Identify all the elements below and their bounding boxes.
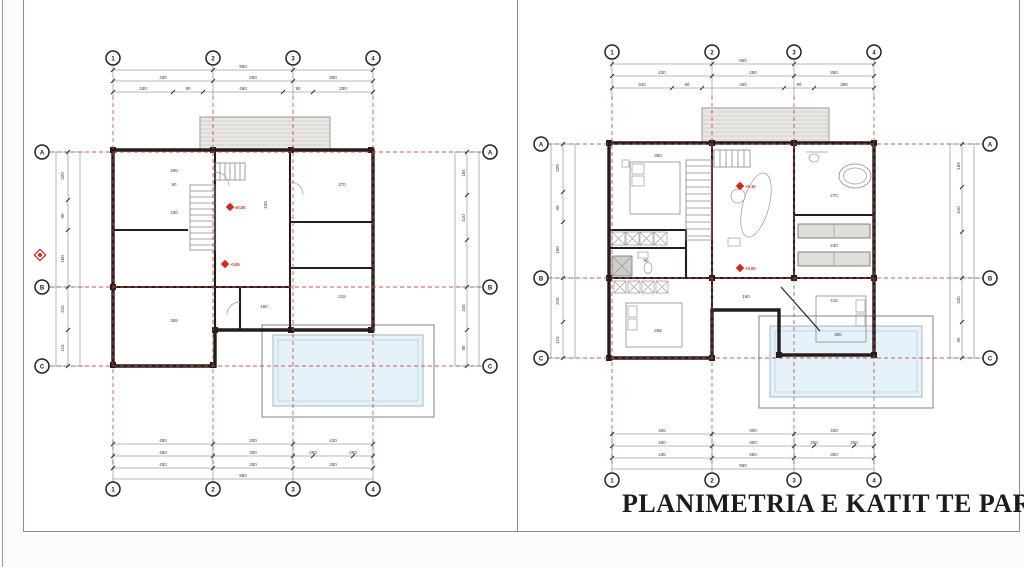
top-dimension-chain: 950 430 250 350 340 90 460 90 280 bbox=[610, 58, 876, 100]
grid-bubble: 1 bbox=[605, 473, 619, 487]
grid-bubble: 4 bbox=[867, 45, 881, 59]
grid-bubble: 4 bbox=[867, 473, 881, 487]
grid-bubble: C bbox=[534, 351, 548, 365]
dim-label: 430 bbox=[658, 452, 666, 457]
dim-label: 160 bbox=[742, 294, 750, 299]
dim-label: 450 bbox=[159, 450, 167, 455]
dim-label: 950 bbox=[739, 58, 747, 63]
grid-bubble-label: C bbox=[988, 357, 993, 363]
terrace bbox=[702, 108, 829, 143]
dim-label: 430 bbox=[830, 428, 838, 433]
grid-bubble-label: A bbox=[488, 151, 493, 157]
dim-label: 260 bbox=[170, 168, 178, 173]
bottom-dimension-chain: 450 300 430 450 300 250 250 430 350 350 … bbox=[111, 438, 375, 482]
grid-bubble-label: A bbox=[539, 143, 544, 149]
dim-label: 950 bbox=[739, 463, 747, 468]
pool bbox=[759, 316, 933, 408]
dim-label: 300 bbox=[249, 438, 257, 443]
dim-label: 430 bbox=[658, 70, 666, 75]
grid-bubble: 1 bbox=[106, 482, 120, 496]
dim-label: 90 bbox=[796, 82, 802, 87]
grid-bubble: 1 bbox=[605, 45, 619, 59]
grid-bubble: 2 bbox=[206, 51, 220, 65]
grid-bubble: 4 bbox=[366, 51, 380, 65]
grid-bubble: 2 bbox=[206, 482, 220, 496]
dim-label: 90 bbox=[684, 82, 690, 87]
dim-label: 350 bbox=[329, 462, 337, 467]
left-dimension-chain: 320 90 160 315 115 bbox=[49, 150, 84, 368]
dim-label: 90 bbox=[171, 182, 177, 187]
dim-label: 950 bbox=[239, 64, 247, 69]
grid-bubble: A bbox=[35, 145, 49, 159]
grid-bubble-label: B bbox=[988, 277, 993, 283]
dim-label: 115 bbox=[555, 336, 560, 344]
dim-label: 250 bbox=[749, 70, 757, 75]
dim-label: 250 bbox=[850, 440, 858, 445]
grid-bubble-label: A bbox=[40, 151, 45, 157]
dim-label: 420 bbox=[263, 201, 268, 209]
dim-label: 90 bbox=[295, 86, 301, 91]
dim-label: 340 bbox=[139, 86, 147, 91]
top-dimension-chain: 950 430 250 350 340 90 460 90 280 bbox=[111, 64, 375, 96]
dim-label: 280 bbox=[840, 82, 848, 87]
dim-label: 90 bbox=[643, 258, 649, 263]
ground-floor-plan-drawing: 950 430 250 350 340 90 460 90 280 450 30… bbox=[24, 0, 519, 532]
section-marker-icon bbox=[34, 249, 45, 260]
dim-label: 315 bbox=[555, 297, 560, 305]
dim-label: 165 bbox=[461, 169, 466, 177]
dim-label: 250 bbox=[309, 450, 317, 455]
dim-label: 90 bbox=[555, 205, 560, 211]
grid-bubble: A bbox=[483, 145, 497, 159]
grid-bubble: 2 bbox=[705, 473, 719, 487]
dim-label: 270 bbox=[338, 182, 346, 187]
dim-label: 450 bbox=[658, 428, 666, 433]
grid-bubble-label: A bbox=[988, 143, 993, 149]
dim-label: 115 bbox=[60, 344, 65, 352]
dim-label: 300 bbox=[834, 332, 842, 337]
dim-label: 270 bbox=[830, 193, 838, 198]
dim-label: 160 bbox=[555, 246, 560, 254]
terrace bbox=[200, 117, 330, 150]
dim-label: 450 bbox=[658, 440, 666, 445]
right-dimension-chain: 165 410 345 90 bbox=[455, 150, 483, 368]
dim-label: 250 bbox=[249, 75, 257, 80]
grid-bubble: B bbox=[983, 271, 997, 285]
dim-label: 90 bbox=[956, 337, 961, 343]
dim-label: 265 bbox=[654, 328, 662, 333]
dim-label: 430 bbox=[159, 75, 167, 80]
dim-label: 350 bbox=[830, 452, 838, 457]
dim-label: 230 bbox=[170, 210, 178, 215]
bottom-dimension-chain: 450 300 430 450 300 250 250 430 350 350 … bbox=[610, 428, 876, 472]
level-marker-icon: +3.00 bbox=[736, 264, 757, 272]
dim-label: 430 bbox=[329, 438, 337, 443]
right-dimension-chain: 165 410 345 90 bbox=[950, 142, 983, 360]
dim-label: 460 bbox=[239, 86, 247, 91]
dim-label: 320 bbox=[60, 172, 65, 180]
plan-caption: PLANIMETRIA E KATIT TE PARE bbox=[622, 489, 1018, 519]
first-floor-plan-drawing: 950 430 250 350 340 90 460 90 280 450 30… bbox=[518, 0, 1021, 532]
dim-label: 160 bbox=[60, 255, 65, 263]
grid-bubble: A bbox=[983, 137, 997, 151]
dim-label: 350 bbox=[249, 462, 257, 467]
grid-bubble-label: C bbox=[488, 365, 493, 371]
grid-bubble: C bbox=[483, 359, 497, 373]
dim-label: 300 bbox=[249, 450, 257, 455]
dim-label: 340 bbox=[638, 82, 646, 87]
dim-label: 350 bbox=[749, 452, 757, 457]
grid-bubble-label: B bbox=[539, 277, 544, 283]
red-grid-lines bbox=[548, 96, 982, 466]
level-marker-icon: -0.05 bbox=[221, 260, 240, 268]
sheet-outer-border bbox=[2, 0, 3, 567]
dim-label: 250 bbox=[810, 440, 818, 445]
grid-bubble: C bbox=[35, 359, 49, 373]
drawing-sheet: 950 430 250 350 340 90 460 90 280 450 30… bbox=[0, 0, 1024, 567]
level-marker-icon: ±0.00 bbox=[226, 203, 246, 211]
grid-bubble-label: C bbox=[40, 365, 45, 371]
dim-label: 280 bbox=[339, 86, 347, 91]
grid-bubble: A bbox=[534, 137, 548, 151]
grid-bubble: C bbox=[983, 351, 997, 365]
dim-label: 160 bbox=[260, 304, 268, 309]
dim-label: 350 bbox=[830, 70, 838, 75]
grid-bubble: 3 bbox=[286, 482, 300, 496]
grid-bubble: 1 bbox=[106, 51, 120, 65]
dim-label: 365 bbox=[170, 318, 178, 323]
dim-label: 415 bbox=[830, 298, 838, 303]
dim-label: 345 bbox=[956, 296, 961, 304]
dim-label: 315 bbox=[338, 294, 346, 299]
dim-label: 950 bbox=[239, 473, 247, 478]
grid-bubble-label: B bbox=[40, 286, 45, 292]
dim-label: 320 bbox=[555, 164, 560, 172]
level-label: +3.00 bbox=[745, 266, 756, 271]
dim-label: 350 bbox=[654, 153, 662, 158]
grid-bubble: B bbox=[35, 280, 49, 294]
ground-floor-panel: 950 430 250 350 340 90 460 90 280 450 30… bbox=[23, 0, 518, 532]
level-label: ±0.00 bbox=[235, 205, 246, 210]
dim-label: 90 bbox=[461, 345, 466, 351]
dim-label: 250 bbox=[349, 450, 357, 455]
left-dimension-chain: 320 90 160 315 115 bbox=[548, 142, 580, 360]
grid-bubble: B bbox=[534, 271, 548, 285]
first-floor-panel: 950 430 250 350 340 90 460 90 280 450 30… bbox=[517, 0, 1020, 532]
dim-label: 350 bbox=[329, 75, 337, 80]
level-marker-icon: +3.10 bbox=[736, 182, 757, 190]
level-label: -0.05 bbox=[230, 262, 240, 267]
dim-label: 300 bbox=[749, 440, 757, 445]
dim-label: 90 bbox=[185, 86, 191, 91]
dim-label: 450 bbox=[159, 438, 167, 443]
dim-label: 165 bbox=[956, 162, 961, 170]
dim-label: 410 bbox=[956, 206, 961, 214]
dim-label: 345 bbox=[461, 304, 466, 312]
pool bbox=[262, 325, 434, 417]
grid-bubble-label: C bbox=[539, 357, 544, 363]
grid-bubble: 4 bbox=[366, 482, 380, 496]
grid-bubble: 2 bbox=[705, 45, 719, 59]
dim-label: 300 bbox=[749, 428, 757, 433]
level-label: +3.10 bbox=[745, 184, 756, 189]
grid-bubble: 3 bbox=[286, 51, 300, 65]
dim-label: 410 bbox=[461, 214, 466, 222]
grid-bubble: 3 bbox=[787, 473, 801, 487]
dim-label: 90 bbox=[60, 213, 65, 219]
grid-bubble: 3 bbox=[787, 45, 801, 59]
dim-label: 460 bbox=[739, 82, 747, 87]
dim-label: 230 bbox=[830, 243, 838, 248]
grid-bubble-label: B bbox=[488, 286, 493, 292]
grid-bubble: B bbox=[483, 280, 497, 294]
stairs bbox=[686, 150, 750, 240]
dim-label: 315 bbox=[60, 305, 65, 313]
dim-label: 430 bbox=[159, 462, 167, 467]
